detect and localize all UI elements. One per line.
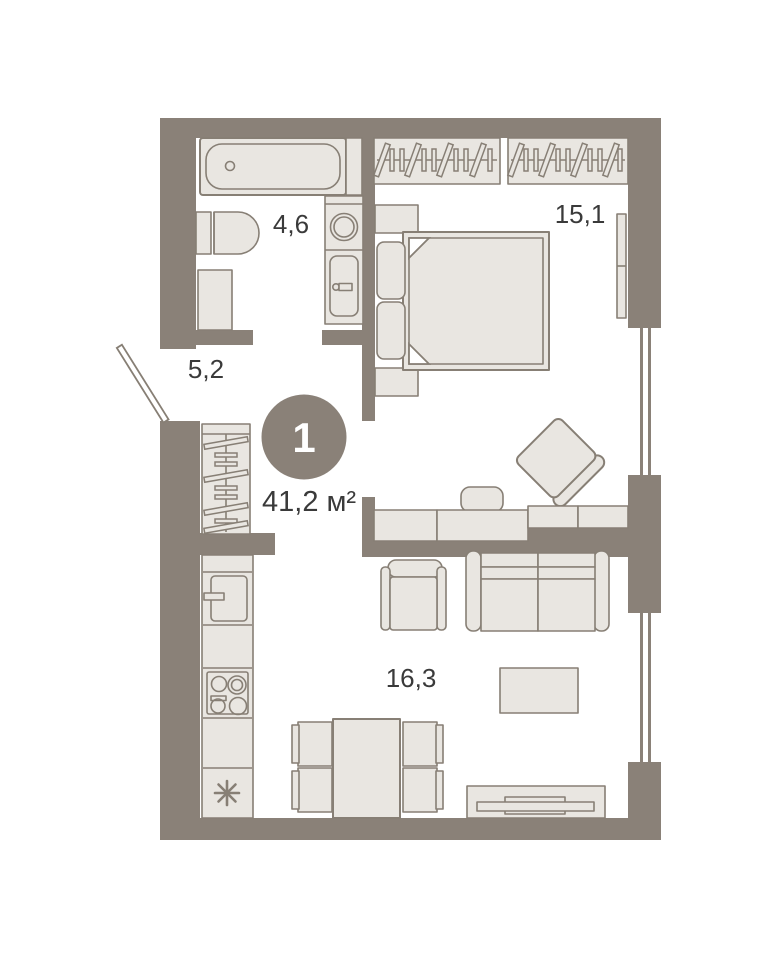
- wall-bathroom-bottom-right: [322, 330, 375, 345]
- double-bed-icon: [377, 232, 549, 370]
- hall-wardrobe-icon: [202, 424, 250, 534]
- wall-right-top: [628, 118, 661, 328]
- floor-plan-page: 4,6: [0, 0, 781, 960]
- total-area-label: 41,2 м²: [262, 486, 356, 518]
- radiator-icon: [617, 214, 626, 318]
- wall-hall-kitchen: [200, 533, 275, 555]
- pillow: [377, 242, 405, 299]
- armchair-icon: [381, 560, 446, 630]
- coffee-table-icon: [500, 668, 578, 713]
- wall-left-upper: [160, 118, 196, 349]
- wall-bathroom-bedroom-divider: [362, 138, 375, 421]
- floor-plan: 4,6: [0, 0, 781, 960]
- dining-chair: [292, 722, 332, 766]
- dining-chair: [403, 722, 443, 766]
- bedroom-area-label: 15,1: [555, 199, 606, 229]
- dining-chair: [292, 768, 332, 812]
- washer-sink-column: [325, 196, 363, 324]
- desk-stool: [461, 487, 503, 512]
- hallway-area-label: 5,2: [188, 354, 224, 384]
- accent-chair-icon: [513, 415, 607, 509]
- entrance-door-icon: [117, 345, 169, 423]
- wall-left-lower: [160, 421, 200, 840]
- bedroom: 15,1: [374, 138, 628, 541]
- nightstand-top: [375, 205, 418, 233]
- kitchen: [202, 555, 253, 818]
- bath-end-panel: [346, 138, 362, 195]
- pillow: [377, 302, 405, 359]
- apartment-badge: 1 41,2 м²: [262, 395, 357, 519]
- nightstand-bottom: [375, 368, 418, 396]
- wardrobe-icon: [374, 138, 628, 184]
- bathroom: 4,6: [196, 138, 363, 330]
- bedroom-window: [640, 328, 651, 475]
- wall-right-middle: [628, 475, 661, 613]
- wall-bottom: [160, 818, 661, 840]
- living-area-label: 16,3: [386, 663, 437, 693]
- tv-stand-icon: [467, 786, 605, 818]
- wall-bathroom-bottom-left: [160, 330, 253, 345]
- wall-top: [160, 118, 661, 138]
- sofa-icon: [466, 551, 609, 631]
- wall-bedroom-doorjamb: [362, 497, 375, 541]
- bathroom-cabinet: [198, 270, 232, 330]
- living-room-window: [640, 613, 651, 762]
- dining-set-icon: [292, 719, 443, 818]
- rooms-count: 1: [292, 414, 315, 461]
- bathroom-area-label: 4,6: [273, 209, 309, 239]
- dining-chair: [403, 768, 443, 812]
- dining-table: [333, 719, 400, 818]
- wall-right-bottom: [628, 762, 661, 840]
- toilet-icon: [196, 212, 259, 254]
- bathtub-icon: [200, 138, 346, 195]
- kitchen-sink-icon: [215, 781, 239, 805]
- living-room: 16,3: [292, 551, 609, 818]
